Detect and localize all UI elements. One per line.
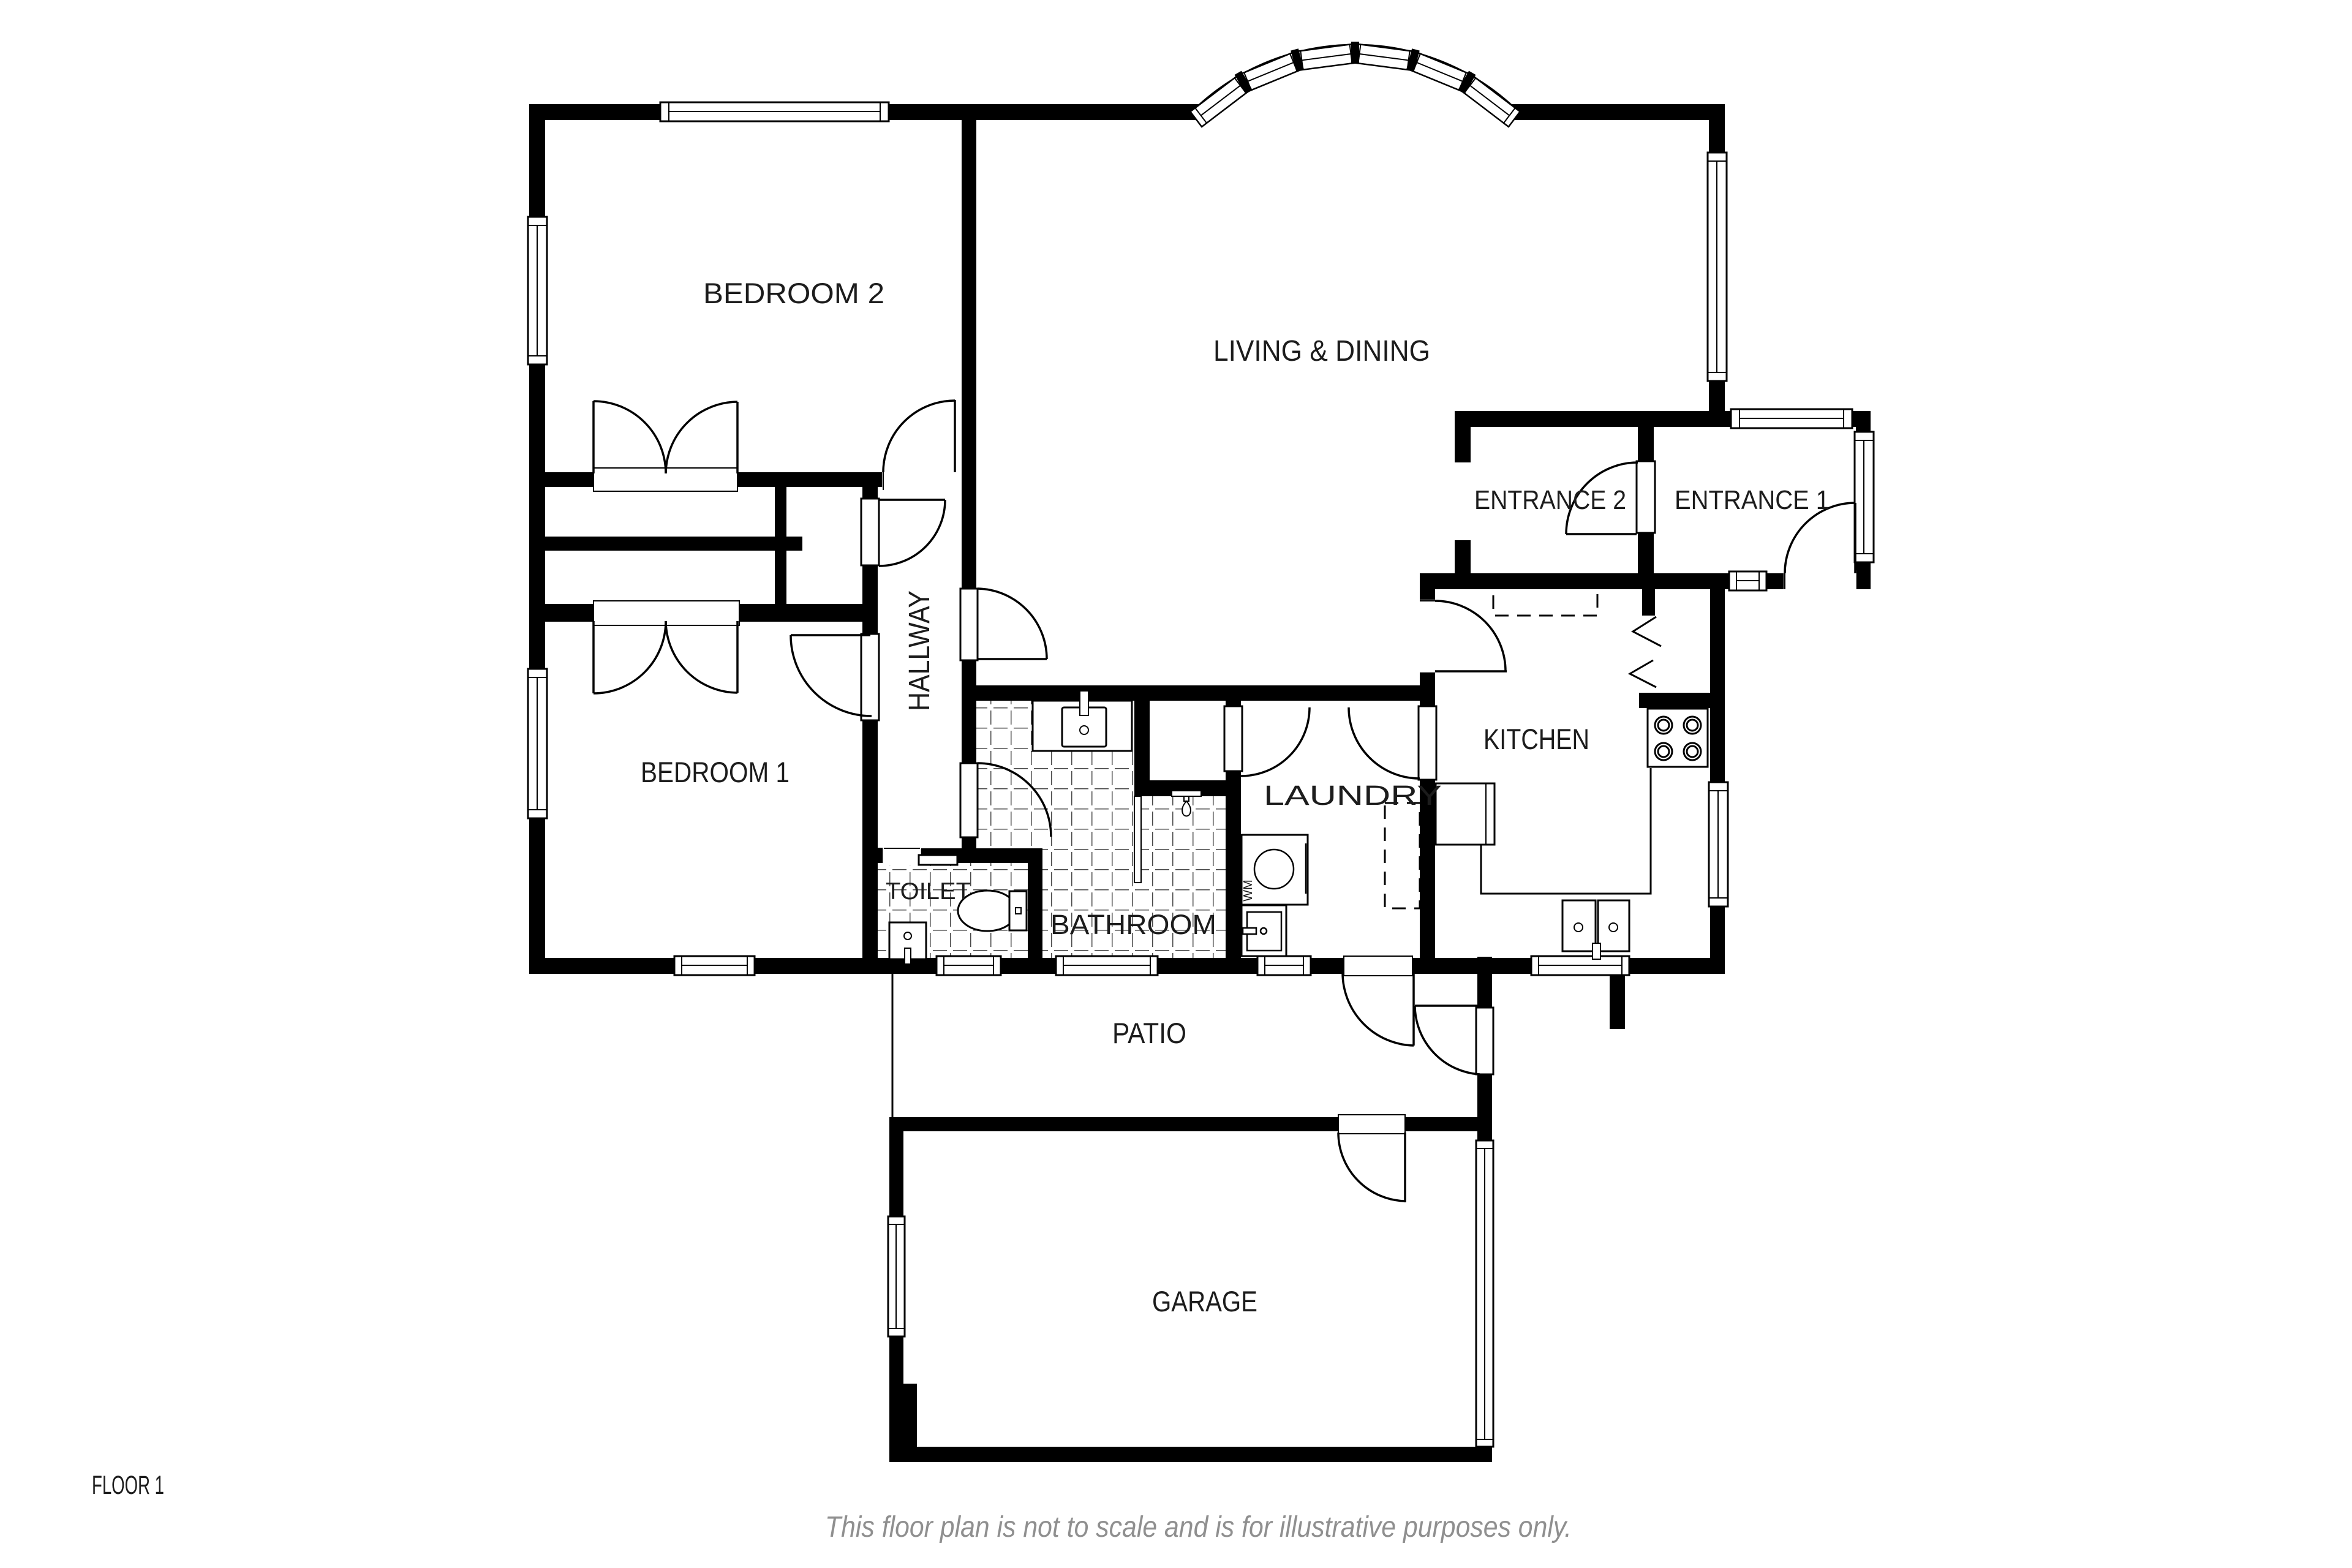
svg-text:ENTRANCE 2: ENTRANCE 2	[1474, 485, 1626, 515]
svg-text:FLOOR 1: FLOOR 1	[92, 1471, 164, 1500]
svg-text:LAUNDRY: LAUNDRY	[1264, 780, 1442, 811]
svg-text:KITCHEN: KITCHEN	[1483, 723, 1589, 755]
svg-text:GARAGE: GARAGE	[1152, 1285, 1257, 1317]
svg-text:LIVING & DINING: LIVING & DINING	[1213, 335, 1430, 367]
svg-text:BEDROOM 1: BEDROOM 1	[641, 756, 790, 788]
svg-text:ENTRANCE 1: ENTRANCE 1	[1675, 485, 1830, 515]
svg-text:TOILET: TOILET	[886, 878, 971, 905]
svg-text:BATHROOM: BATHROOM	[1050, 909, 1216, 940]
svg-text:BEDROOM 2: BEDROOM 2	[703, 277, 884, 309]
svg-text:PATIO: PATIO	[1112, 1017, 1186, 1049]
svg-text:This floor plan is not to scal: This floor plan is not to scale and is f…	[825, 1511, 1572, 1543]
svg-text:HALLWAY: HALLWAY	[903, 590, 936, 711]
svg-text:WM: WM	[1242, 880, 1255, 902]
